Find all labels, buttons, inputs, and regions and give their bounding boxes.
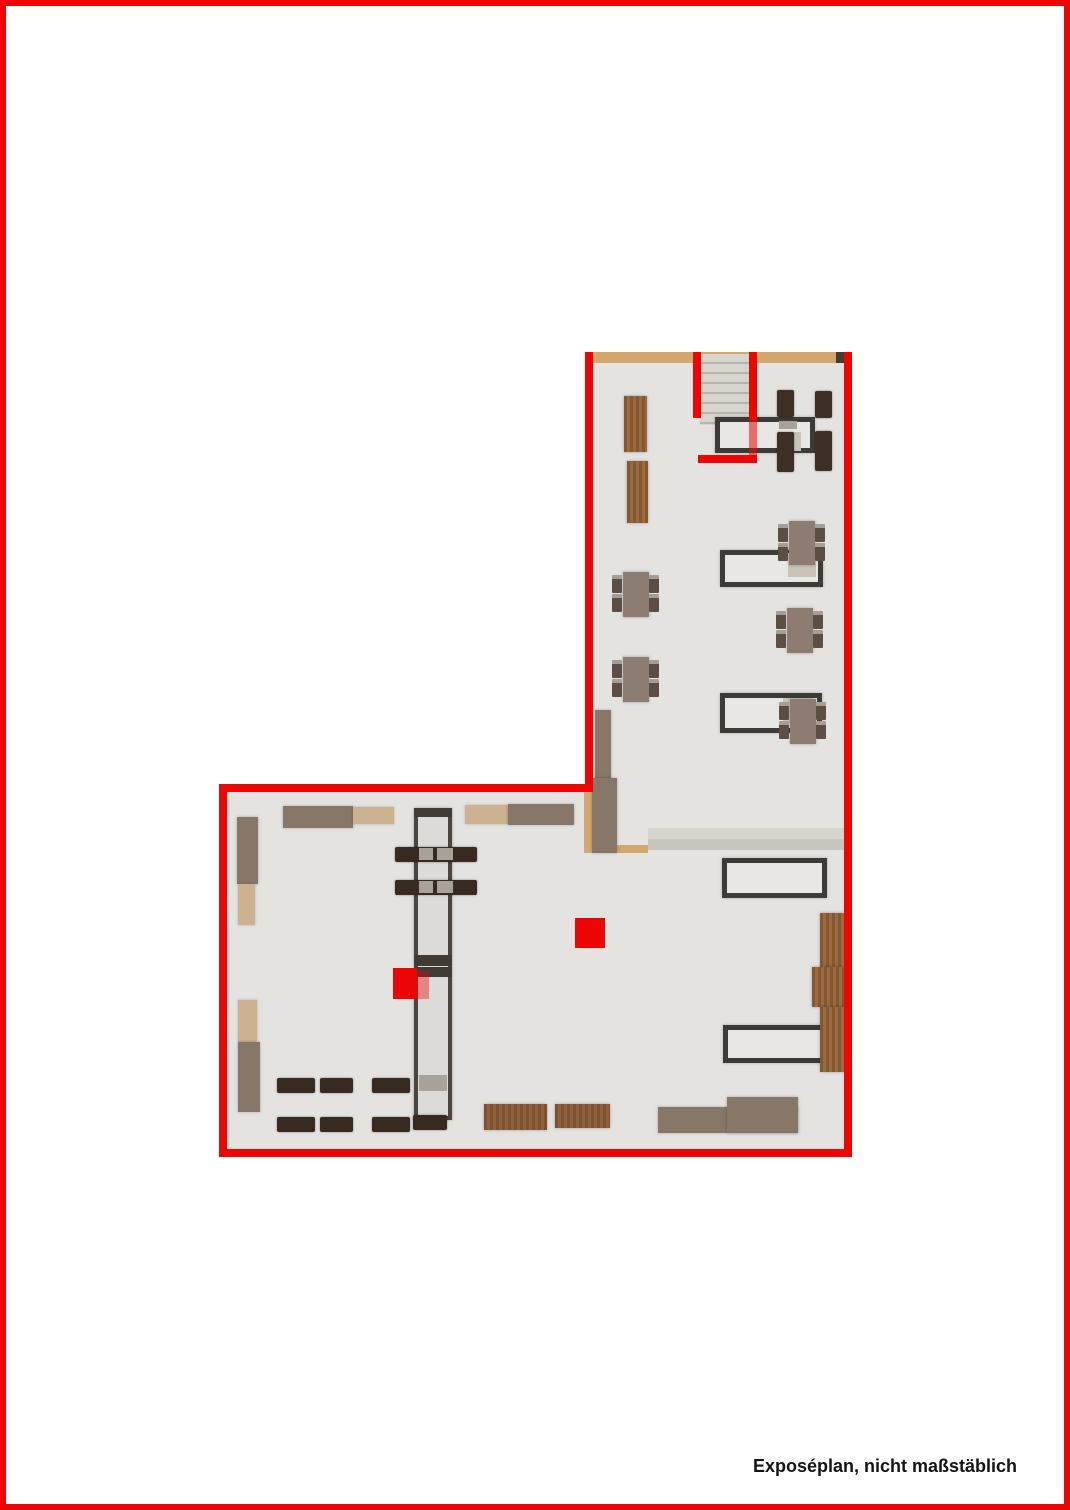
- wood-shelf-2: [627, 461, 648, 523]
- cafe-table-1-chair: [649, 594, 659, 612]
- shelf-top-1-beige: [353, 807, 394, 824]
- bench-row1-3: [372, 1078, 410, 1093]
- wood-table-1: [484, 1104, 547, 1130]
- entry-chair-4: [815, 431, 832, 471]
- stair-wall-right: [749, 352, 757, 420]
- cafe-table-2: [623, 657, 649, 702]
- cafe-table-3-chair: [813, 630, 823, 648]
- cabinet-left-bottom: [238, 1042, 260, 1112]
- cafe-table-4: [789, 521, 815, 565]
- counter-cross-table-1: [395, 847, 477, 862]
- top-wall-end-cap: [836, 352, 844, 363]
- wall-bottom: [219, 1149, 852, 1157]
- cafe-table-3-chair: [776, 630, 786, 648]
- plan-caption: Exposéplan, nicht maßstäblich: [753, 1456, 1017, 1477]
- marker-red-small: [393, 968, 417, 999]
- entry-chair-2: [815, 391, 832, 418]
- counter-cross-table-2: [395, 880, 477, 895]
- wood-rack-right-3: [820, 1007, 845, 1072]
- cafe-table-3: [787, 608, 813, 653]
- bench-row2-4: [413, 1115, 447, 1130]
- shelf-top-1-taupe: [283, 806, 353, 828]
- counter-cross-table-2-seat: [419, 881, 433, 893]
- counter-cross-table-1-seat: [437, 848, 453, 860]
- wood-rack-right-2: [812, 967, 844, 1007]
- cafe-table-2-chair: [612, 660, 622, 678]
- bench-row1-1: [277, 1078, 315, 1093]
- hall-strip-lower: [648, 839, 844, 850]
- counter-cross-table-2-seat: [437, 881, 453, 893]
- junction-cabinet-narrow: [595, 710, 611, 778]
- wood-shelf-1: [624, 396, 647, 452]
- staircase: [700, 354, 749, 425]
- sideboard-high: [727, 1097, 798, 1133]
- bench-row2-1: [277, 1117, 315, 1132]
- wall-lower-top: [219, 784, 593, 792]
- cafe-table-2-chair: [649, 679, 659, 697]
- display-counter-gray-shelf: [419, 1075, 447, 1091]
- cafe-table-5-chair: [816, 721, 826, 739]
- cafe-table-5-chair: [816, 702, 826, 720]
- bench-row2-2: [320, 1117, 353, 1132]
- cafe-table-5: [790, 699, 816, 744]
- desk-3: [722, 858, 827, 898]
- stair-wall-bottom: [698, 455, 757, 463]
- cafe-table-4-chair: [778, 543, 788, 561]
- counter-cross-table-1-seat: [419, 848, 433, 860]
- junction-cabinet-wide: [592, 778, 617, 853]
- wood-table-2: [555, 1104, 610, 1128]
- entry-chair-1: [777, 390, 794, 417]
- bench-row2-3: [372, 1117, 410, 1132]
- wall-lower-left: [219, 784, 227, 1157]
- cafe-table-5-chair: [779, 721, 789, 739]
- bench-row1-2: [320, 1078, 353, 1093]
- cafe-table-3-chair: [813, 611, 823, 629]
- cafe-table-2-chair: [612, 679, 622, 697]
- cafe-table-4-chair: [815, 543, 825, 561]
- display-counter-divider-1: [414, 955, 452, 966]
- cafe-table-4-chair: [815, 524, 825, 542]
- cabinet-left-top: [237, 817, 258, 884]
- cabinet-left-bottom-beige: [238, 1000, 257, 1042]
- cabinet-left-top-beige: [238, 884, 255, 925]
- wall-right: [844, 352, 852, 1157]
- shelf-top-2-taupe: [508, 804, 574, 825]
- marker-red-small-overlay: [417, 971, 429, 999]
- cafe-table-1-chair: [612, 575, 622, 593]
- cafe-table-4-chair: [778, 524, 788, 542]
- wood-rack-right-1: [820, 913, 844, 972]
- display-counter-top-cap: [414, 808, 452, 817]
- marker-red-large: [575, 918, 605, 948]
- stair-wall-left: [693, 352, 701, 418]
- cafe-table-3-chair: [776, 611, 786, 629]
- cafe-table-1-chair: [649, 575, 659, 593]
- cafe-table-2-chair: [649, 660, 659, 678]
- cafe-table-1: [623, 572, 649, 617]
- wall-upper-left: [585, 352, 593, 792]
- cafe-table-1-chair: [612, 594, 622, 612]
- hall-strip-upper: [648, 828, 844, 839]
- shelf-top-2-beige: [465, 805, 508, 824]
- expose-plan-page: Exposéplan, nicht maßstäblich: [0, 0, 1070, 1510]
- page-border: [0, 0, 1070, 1510]
- desk-4: [723, 1025, 827, 1063]
- entry-table-seat-1: [779, 421, 797, 429]
- cafe-table-5-chair: [779, 702, 789, 720]
- entry-chair-3: [777, 432, 794, 472]
